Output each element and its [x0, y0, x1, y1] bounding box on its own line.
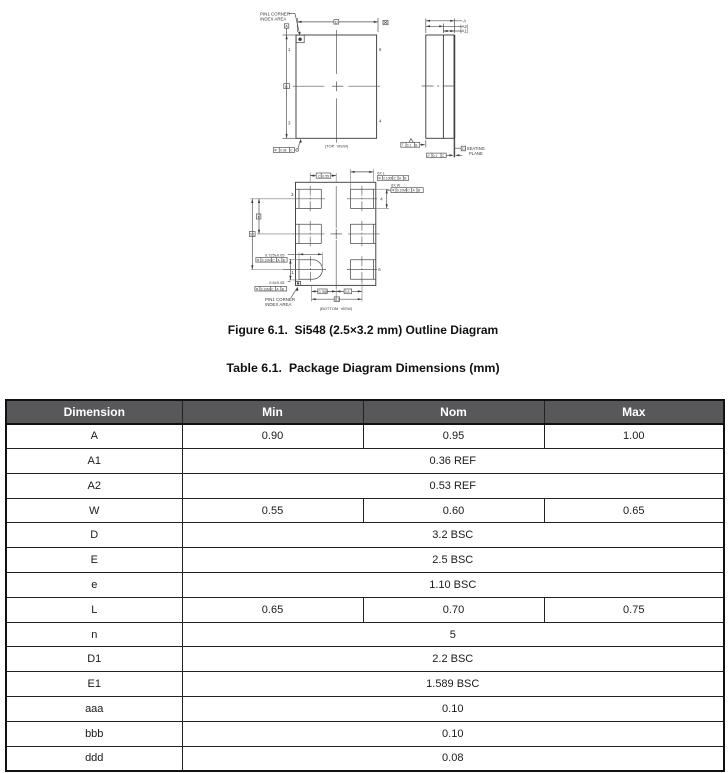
- svg-text:T: T: [402, 143, 404, 147]
- svg-text:E: E: [285, 84, 288, 89]
- svg-text:0.10M: 0.10M: [383, 176, 392, 180]
- svg-text:0.55: 0.55: [322, 175, 329, 179]
- svg-text:C: C: [407, 189, 410, 193]
- svg-text:(A1): (A1): [460, 29, 469, 34]
- svg-text:1: 1: [291, 270, 294, 275]
- svg-text:6: 6: [379, 47, 382, 52]
- svg-text://: //: [428, 154, 430, 158]
- svg-text:Φ: Φ: [256, 287, 259, 291]
- svg-text:1: 1: [288, 47, 291, 52]
- svg-text:A: A: [463, 19, 466, 24]
- svg-text:(TOP VIEW): (TOP VIEW): [325, 144, 349, 149]
- svg-text:C: C: [290, 148, 293, 152]
- svg-text:(BOTTOM VIEW): (BOTTOM VIEW): [320, 306, 353, 311]
- svg-text:0.8: 0.8: [345, 290, 350, 294]
- svg-text:Φ: Φ: [274, 148, 277, 152]
- svg-text:B: B: [418, 189, 420, 193]
- svg-text:INDEX AREA: INDEX AREA: [260, 16, 286, 21]
- svg-text:Φ: Φ: [392, 189, 395, 193]
- svg-text:C: C: [462, 147, 465, 151]
- svg-text:A: A: [413, 189, 416, 193]
- svg-text:B: B: [404, 176, 406, 180]
- svg-text:B: B: [415, 143, 417, 147]
- svg-text:Φ: Φ: [378, 176, 381, 180]
- svg-text:6: 6: [378, 267, 381, 272]
- svg-text:PLANE: PLANE: [469, 151, 483, 156]
- svg-text:C: C: [394, 176, 397, 180]
- svg-text:0.10M: 0.10M: [397, 189, 406, 193]
- svg-text:0.10M: 0.10M: [261, 287, 270, 291]
- svg-text:3: 3: [288, 121, 291, 126]
- svg-text:6X W: 6X W: [391, 184, 400, 188]
- svg-text:B: B: [283, 258, 285, 262]
- svg-text:0.725±0.05: 0.725±0.05: [265, 252, 284, 257]
- svg-text:INDEX AREA: INDEX AREA: [265, 302, 291, 307]
- svg-text:Φ: Φ: [257, 258, 260, 262]
- svg-text:B: B: [282, 287, 284, 291]
- svg-text:0.1: 0.1: [433, 154, 438, 158]
- svg-text:0.08: 0.08: [280, 148, 286, 152]
- svg-text:0.788: 0.788: [319, 290, 327, 294]
- svg-text:3: 3: [291, 192, 294, 197]
- svg-text:A: A: [399, 176, 402, 180]
- svg-text:0.6±0.05: 0.6±0.05: [269, 280, 284, 285]
- svg-text:2.2: 2.2: [335, 298, 340, 302]
- svg-text:0.1: 0.1: [407, 143, 412, 147]
- svg-text:6X L: 6X L: [377, 172, 384, 176]
- svg-text:0.10M: 0.10M: [262, 258, 271, 262]
- svg-text:4: 4: [380, 197, 383, 202]
- svg-text:E1: E1: [250, 232, 254, 236]
- svg-text:e: e: [258, 214, 261, 219]
- svg-text:D: D: [335, 20, 338, 25]
- svg-text:4: 4: [379, 119, 382, 124]
